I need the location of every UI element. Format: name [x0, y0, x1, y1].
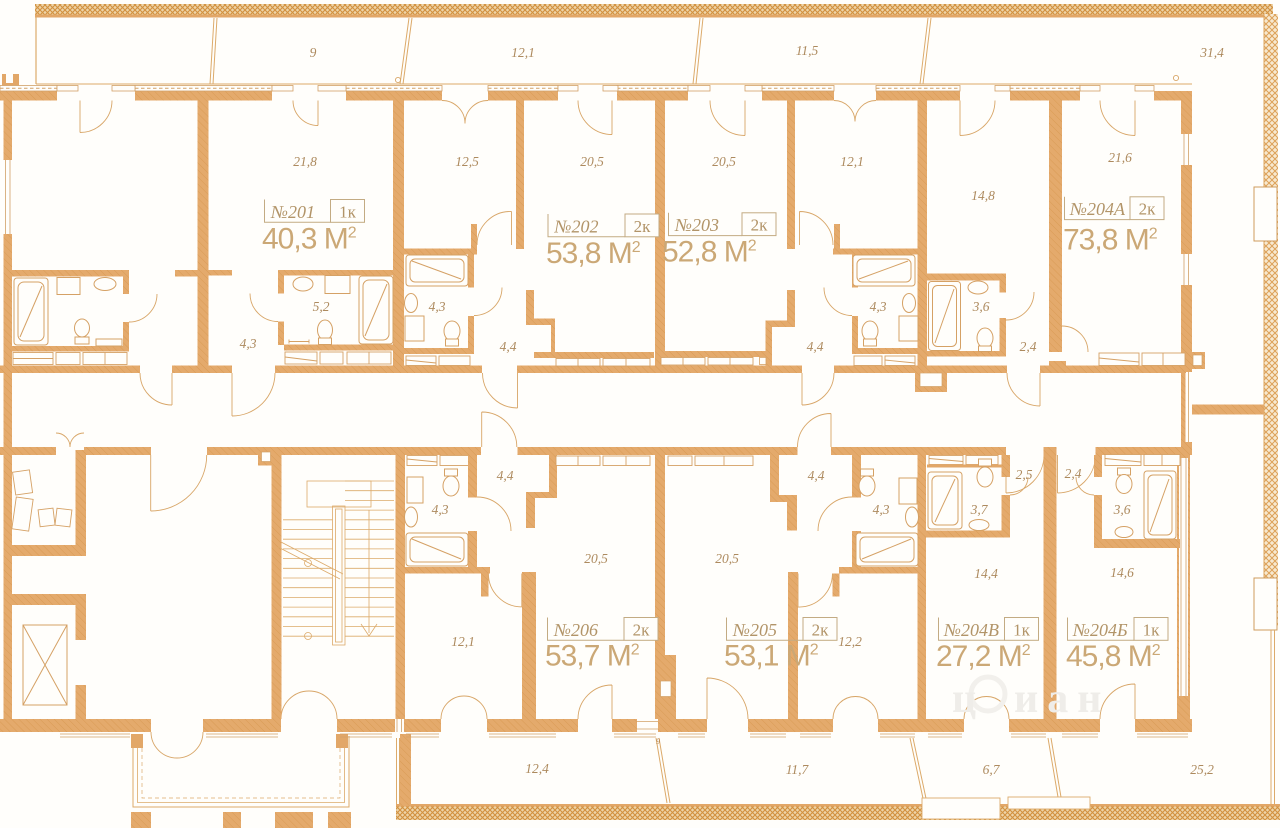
svg-text:4,3: 4,3	[870, 299, 887, 314]
svg-text:27,2 М2: 27,2 М2	[936, 640, 1031, 673]
svg-text:№204А: №204А	[1069, 199, 1126, 219]
svg-text:53,7 М2: 53,7 М2	[545, 640, 640, 673]
svg-text:4,4: 4,4	[497, 468, 514, 483]
svg-text:ц: ц	[952, 676, 976, 722]
svg-text:4,3: 4,3	[873, 502, 890, 517]
svg-text:5,2: 5,2	[313, 299, 330, 314]
svg-text:14,6: 14,6	[1110, 565, 1134, 580]
svg-text:3,6: 3,6	[1113, 502, 1131, 517]
svg-text:25,2: 25,2	[1190, 762, 1214, 777]
svg-text:11,7: 11,7	[786, 762, 810, 777]
svg-text:3,6: 3,6	[972, 299, 990, 314]
svg-text:№201: №201	[270, 202, 315, 222]
svg-text:20,5: 20,5	[715, 551, 739, 566]
svg-text:14,4: 14,4	[974, 566, 998, 581]
svg-text:2,5: 2,5	[1016, 467, 1033, 482]
svg-text:40,3 М2: 40,3 М2	[262, 223, 357, 256]
svg-text:9: 9	[656, 737, 660, 746]
svg-text:11,5: 11,5	[796, 43, 819, 58]
svg-text:53,8 М2: 53,8 М2	[546, 237, 641, 270]
svg-text:4,4: 4,4	[500, 339, 517, 354]
svg-text:3,7: 3,7	[970, 502, 989, 517]
svg-text:№205: №205	[732, 620, 777, 640]
svg-text:№203: №203	[674, 215, 719, 235]
svg-text:№204Б: №204Б	[1072, 620, 1128, 640]
svg-text:4,3: 4,3	[432, 502, 449, 517]
svg-text:№204В: №204В	[943, 620, 999, 640]
svg-text:12,2: 12,2	[838, 634, 862, 649]
svg-text:2,4: 2,4	[1065, 466, 1082, 481]
svg-text:21,6: 21,6	[1108, 150, 1132, 165]
svg-text:12,1: 12,1	[840, 154, 864, 169]
svg-text:№202: №202	[554, 217, 599, 237]
svg-text:52,8 М2: 52,8 М2	[662, 236, 757, 269]
svg-text:12,4: 12,4	[525, 761, 549, 776]
svg-text:№206: №206	[553, 620, 598, 640]
svg-text:4,3: 4,3	[240, 336, 257, 351]
svg-text:14,8: 14,8	[971, 188, 995, 203]
svg-text:45,8 М2: 45,8 М2	[1066, 640, 1161, 673]
svg-text:2к: 2к	[634, 217, 652, 236]
svg-text:2,4: 2,4	[1020, 339, 1037, 354]
svg-text:2к: 2к	[633, 621, 651, 640]
svg-text:53,1 М2: 53,1 М2	[724, 640, 819, 673]
svg-text:73,8 М2: 73,8 М2	[1063, 224, 1158, 257]
svg-text:1к: 1к	[1143, 621, 1161, 640]
svg-text:1к: 1к	[1013, 621, 1031, 640]
svg-text:21,8: 21,8	[293, 154, 317, 169]
svg-text:31,4: 31,4	[1199, 45, 1224, 60]
svg-text:20,5: 20,5	[584, 551, 608, 566]
svg-text:20,5: 20,5	[712, 154, 736, 169]
svg-text:12,5: 12,5	[455, 154, 479, 169]
svg-text:4,4: 4,4	[808, 468, 825, 483]
svg-text:4,3: 4,3	[429, 299, 446, 314]
svg-text:2к: 2к	[812, 621, 830, 640]
svg-text:12,1: 12,1	[451, 634, 475, 649]
svg-text:6,7: 6,7	[983, 762, 1001, 777]
svg-text:1к: 1к	[339, 203, 357, 222]
svg-text:2к: 2к	[751, 216, 769, 235]
svg-text:20,5: 20,5	[580, 154, 604, 169]
svg-text:2к: 2к	[1139, 200, 1157, 219]
svg-text:9: 9	[310, 45, 317, 60]
svg-text:4,4: 4,4	[807, 339, 824, 354]
svg-text:12,1: 12,1	[511, 45, 535, 60]
svg-text:иан: иан	[1014, 676, 1110, 722]
